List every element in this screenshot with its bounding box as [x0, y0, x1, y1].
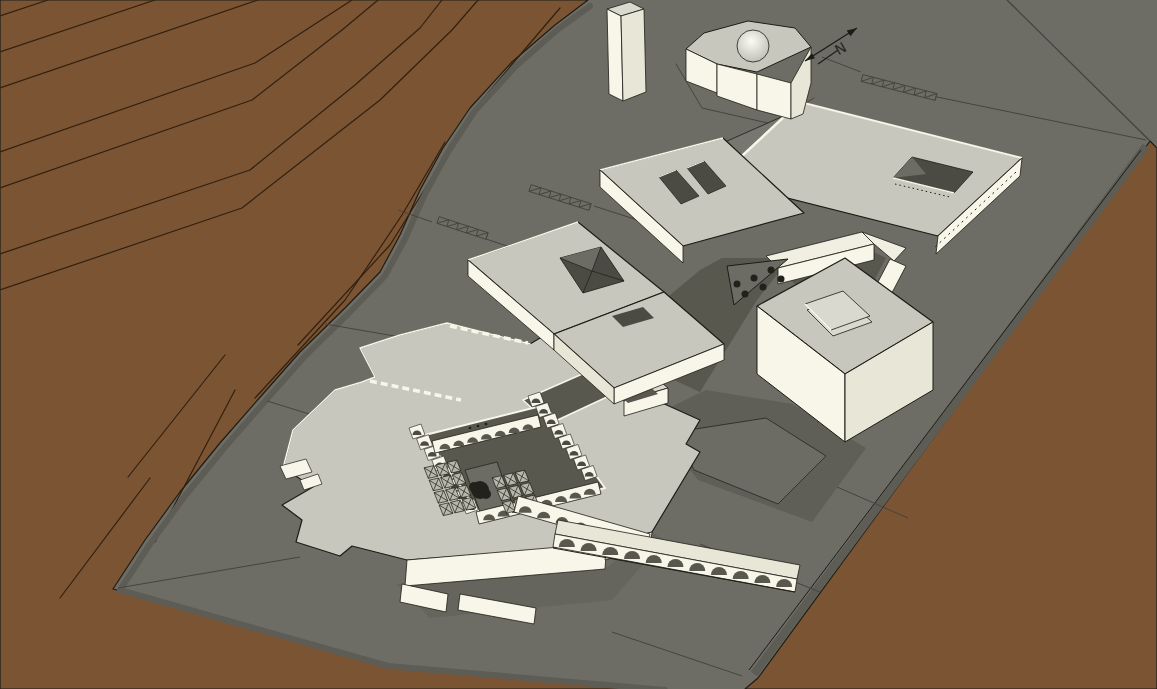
plaza-tree: [778, 276, 785, 283]
tower-side: [621, 9, 646, 101]
courtyard-tree: [481, 489, 491, 499]
courtyard-dot: [477, 425, 480, 428]
dome: [737, 30, 769, 62]
model-viewport[interactable]: N: [0, 0, 1157, 689]
courtyard-dot: [485, 423, 488, 426]
plaza-tree: [751, 275, 758, 282]
courtyard-dot: [469, 427, 472, 430]
plaza-tree: [760, 284, 767, 291]
plaza-tree: [742, 291, 749, 298]
site-model-canvas: N: [0, 0, 1157, 689]
tower-front: [607, 9, 623, 101]
plaza-tree: [768, 267, 775, 274]
courtyard-tree: [469, 482, 479, 492]
plaza-tree: [734, 281, 741, 288]
